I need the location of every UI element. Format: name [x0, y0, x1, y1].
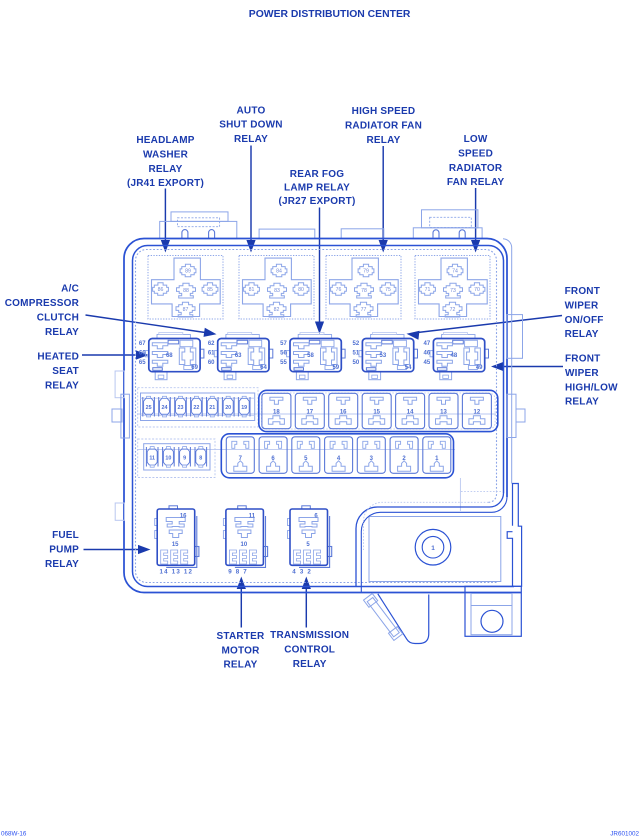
svg-text:55: 55: [280, 360, 287, 366]
svg-text:58: 58: [307, 353, 314, 359]
svg-text:23: 23: [178, 405, 184, 411]
svg-text:67: 67: [139, 341, 146, 347]
svg-text:47: 47: [424, 341, 431, 347]
svg-text:86: 86: [158, 287, 164, 293]
svg-text:068W-16: 068W-16: [1, 831, 27, 838]
svg-text:54: 54: [405, 365, 412, 371]
svg-text:11: 11: [149, 455, 155, 461]
svg-text:4 3 2: 4 3 2: [292, 569, 312, 576]
svg-text:52: 52: [353, 341, 360, 347]
svg-text:75: 75: [385, 287, 391, 293]
svg-text:21: 21: [209, 405, 215, 411]
svg-text:HIGH SPEEDRADIATOR FANRELAY: HIGH SPEEDRADIATOR FANRELAY: [345, 106, 422, 146]
svg-text:15: 15: [172, 542, 179, 548]
svg-text:24: 24: [162, 405, 168, 411]
svg-text:76: 76: [336, 287, 342, 293]
svg-text:71: 71: [425, 287, 431, 293]
svg-text:19: 19: [241, 405, 247, 411]
svg-text:2: 2: [402, 456, 406, 462]
svg-text:16: 16: [180, 514, 187, 520]
svg-text:59: 59: [332, 365, 339, 371]
svg-text:17: 17: [306, 410, 313, 416]
svg-text:1: 1: [435, 456, 439, 462]
svg-text:25: 25: [146, 405, 152, 411]
svg-text:9: 9: [183, 455, 186, 461]
svg-text:11: 11: [249, 514, 256, 520]
svg-text:73: 73: [450, 288, 456, 294]
svg-text:FUELPUMPRELAY: FUELPUMPRELAY: [45, 530, 79, 570]
svg-text:50: 50: [353, 360, 360, 366]
svg-text:72: 72: [450, 307, 456, 313]
svg-text:56: 56: [280, 351, 287, 357]
svg-text:FRONTWIPERON/OFFRELAY: FRONTWIPERON/OFFRELAY: [565, 286, 604, 340]
svg-text:HEADLAMPWASHERRELAY(JR41 EXPOR: HEADLAMPWASHERRELAY(JR41 EXPORT): [127, 135, 204, 189]
svg-text:13: 13: [440, 410, 447, 416]
svg-text:14 13 12: 14 13 12: [160, 569, 194, 576]
svg-text:3: 3: [370, 456, 374, 462]
svg-text:REAR FOGLAMP RELAY(JR27 EXPORT: REAR FOGLAMP RELAY(JR27 EXPORT): [278, 169, 355, 207]
svg-text:74: 74: [452, 269, 458, 275]
svg-text:STARTERMOTORRELAY: STARTERMOTORRELAY: [217, 631, 265, 671]
svg-text:64: 64: [260, 365, 267, 371]
svg-text:4: 4: [337, 456, 341, 462]
svg-text:8: 8: [199, 455, 202, 461]
svg-text:22: 22: [193, 405, 199, 411]
svg-text:80: 80: [298, 287, 304, 293]
svg-text:78: 78: [361, 288, 367, 294]
svg-text:1: 1: [431, 545, 435, 552]
svg-text:60: 60: [208, 360, 215, 366]
svg-text:85: 85: [207, 287, 213, 293]
svg-text:48: 48: [451, 353, 458, 359]
svg-text:10: 10: [165, 455, 171, 461]
svg-text:63: 63: [235, 353, 242, 359]
svg-text:51: 51: [353, 351, 360, 357]
svg-text:5: 5: [306, 542, 310, 548]
svg-text:JR601002: JR601002: [610, 831, 639, 838]
svg-text:69: 69: [191, 365, 198, 371]
svg-text:81: 81: [249, 287, 255, 293]
svg-text:83: 83: [274, 288, 280, 294]
svg-text:66: 66: [139, 351, 146, 357]
svg-text:68: 68: [166, 353, 173, 359]
svg-text:HEATEDSEATRELAY: HEATEDSEATRELAY: [37, 352, 79, 392]
svg-text:88: 88: [183, 288, 189, 294]
svg-text:57: 57: [280, 341, 287, 347]
svg-text:9 8 7: 9 8 7: [228, 569, 248, 576]
svg-text:46: 46: [424, 351, 431, 357]
svg-text:FRONTWIPERHIGH/LOWRELAY: FRONTWIPERHIGH/LOWRELAY: [565, 354, 618, 408]
svg-text:12: 12: [474, 410, 481, 416]
svg-text:14: 14: [407, 410, 414, 416]
svg-text:16: 16: [340, 410, 347, 416]
svg-text:LOWSPEEDRADIATORFAN RELAY: LOWSPEEDRADIATORFAN RELAY: [447, 134, 505, 188]
svg-text:70: 70: [474, 287, 480, 293]
svg-text:AUTOSHUT DOWNRELAY: AUTOSHUT DOWNRELAY: [219, 105, 282, 145]
svg-text:POWER DISTRIBUTION CENTER: POWER DISTRIBUTION CENTER: [249, 8, 411, 20]
svg-text:6: 6: [271, 456, 275, 462]
svg-text:TRANSMISSIONCONTROLRELAY: TRANSMISSIONCONTROLRELAY: [270, 630, 349, 670]
svg-text:79: 79: [363, 269, 369, 275]
svg-text:18: 18: [273, 410, 280, 416]
svg-text:82: 82: [274, 307, 280, 313]
svg-text:77: 77: [361, 307, 367, 313]
svg-text:87: 87: [183, 307, 189, 313]
svg-text:20: 20: [225, 405, 231, 411]
svg-text:89: 89: [185, 269, 191, 275]
svg-text:A/CCOMPRESSORCLUTCHRELAY: A/CCOMPRESSORCLUTCHRELAY: [5, 284, 80, 338]
svg-text:62: 62: [208, 341, 215, 347]
svg-text:49: 49: [476, 365, 483, 371]
svg-text:45: 45: [424, 360, 431, 366]
svg-text:15: 15: [373, 410, 380, 416]
svg-text:84: 84: [276, 269, 282, 275]
svg-text:65: 65: [139, 360, 146, 366]
svg-text:53: 53: [380, 353, 387, 359]
svg-text:61: 61: [208, 351, 215, 357]
svg-text:5: 5: [304, 456, 308, 462]
svg-text:7: 7: [239, 456, 243, 462]
svg-text:10: 10: [241, 542, 248, 548]
